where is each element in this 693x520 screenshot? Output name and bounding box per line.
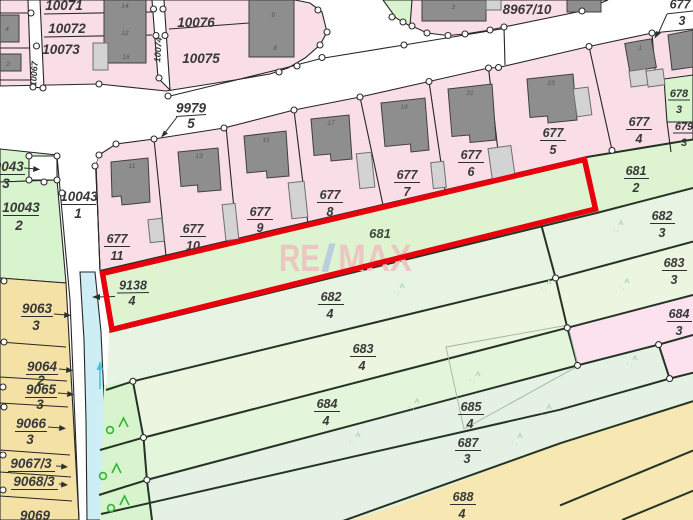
svg-text:5: 5 bbox=[550, 143, 558, 157]
svg-text:682: 682 bbox=[652, 209, 673, 223]
svg-text:681: 681 bbox=[626, 164, 647, 178]
svg-text:8: 8 bbox=[273, 45, 277, 52]
svg-text:4: 4 bbox=[5, 26, 9, 33]
svg-text:2: 2 bbox=[14, 218, 23, 233]
svg-text:9979: 9979 bbox=[176, 101, 207, 116]
svg-text:5: 5 bbox=[187, 116, 195, 131]
svg-text:3: 3 bbox=[679, 14, 686, 28]
svg-text:677: 677 bbox=[543, 126, 565, 140]
svg-text:RE: RE bbox=[279, 238, 320, 280]
svg-text:4: 4 bbox=[358, 359, 366, 373]
svg-text:11: 11 bbox=[129, 163, 136, 170]
svg-text:13: 13 bbox=[195, 153, 203, 160]
svg-text:4: 4 bbox=[466, 417, 474, 431]
svg-text:9068/3: 9068/3 bbox=[13, 474, 55, 489]
svg-text:3: 3 bbox=[32, 318, 40, 333]
svg-text:679: 679 bbox=[675, 121, 693, 133]
svg-text:15: 15 bbox=[262, 137, 270, 144]
svg-text:17: 17 bbox=[327, 120, 335, 127]
svg-text:14: 14 bbox=[121, 3, 129, 10]
svg-text:688: 688 bbox=[453, 490, 474, 504]
svg-text:6: 6 bbox=[468, 165, 476, 179]
svg-text:12: 12 bbox=[121, 30, 129, 37]
svg-text:677: 677 bbox=[320, 188, 342, 202]
svg-text:10043: 10043 bbox=[60, 189, 98, 204]
svg-text:3: 3 bbox=[451, 4, 455, 11]
svg-text:685: 685 bbox=[461, 400, 483, 414]
svg-text:677: 677 bbox=[629, 115, 651, 129]
svg-text:7: 7 bbox=[404, 185, 412, 199]
svg-text:10067: 10067 bbox=[28, 60, 40, 87]
svg-text:677: 677 bbox=[670, 0, 692, 12]
svg-text:3: 3 bbox=[659, 226, 666, 240]
svg-text:10074: 10074 bbox=[152, 37, 164, 63]
svg-text:687: 687 bbox=[458, 436, 480, 450]
svg-text:10043: 10043 bbox=[0, 159, 24, 174]
svg-text:9065: 9065 bbox=[26, 382, 57, 397]
svg-text:2: 2 bbox=[632, 181, 640, 195]
svg-text:10073: 10073 bbox=[42, 42, 80, 57]
svg-text:3: 3 bbox=[676, 104, 682, 116]
svg-text:4: 4 bbox=[326, 307, 334, 321]
svg-text:4: 4 bbox=[635, 132, 643, 146]
svg-text:9: 9 bbox=[271, 12, 275, 19]
svg-text:10076: 10076 bbox=[177, 15, 215, 30]
svg-text:4: 4 bbox=[128, 294, 136, 308]
svg-text:682: 682 bbox=[321, 290, 342, 304]
svg-text:9064: 9064 bbox=[27, 359, 58, 374]
svg-text:9138: 9138 bbox=[119, 279, 147, 293]
svg-text:1: 1 bbox=[638, 45, 642, 52]
svg-text:21: 21 bbox=[465, 90, 474, 97]
svg-text:9067/3: 9067/3 bbox=[10, 456, 52, 471]
svg-text:16: 16 bbox=[122, 54, 130, 61]
svg-text:8967/10: 8967/10 bbox=[503, 2, 552, 17]
svg-text:10071: 10071 bbox=[45, 0, 83, 13]
svg-text:9069: 9069 bbox=[20, 508, 51, 520]
svg-text:3: 3 bbox=[676, 324, 683, 338]
svg-text:3: 3 bbox=[26, 432, 34, 447]
svg-text:10043: 10043 bbox=[2, 200, 40, 215]
svg-text:9063: 9063 bbox=[22, 301, 53, 316]
svg-text:1: 1 bbox=[74, 206, 82, 221]
svg-text:678: 678 bbox=[670, 88, 689, 100]
svg-text:3: 3 bbox=[36, 397, 44, 412]
svg-text:4: 4 bbox=[458, 507, 466, 520]
svg-text:11: 11 bbox=[111, 249, 124, 263]
svg-text:4: 4 bbox=[322, 414, 330, 428]
svg-text:9066: 9066 bbox=[16, 416, 47, 431]
svg-text:10072: 10072 bbox=[48, 21, 86, 36]
svg-text:677: 677 bbox=[183, 222, 205, 236]
svg-text:23: 23 bbox=[546, 80, 555, 87]
svg-text:2: 2 bbox=[5, 61, 10, 68]
svg-text:19: 19 bbox=[400, 104, 408, 111]
svg-text:3: 3 bbox=[681, 137, 687, 149]
svg-text:10075: 10075 bbox=[182, 51, 220, 66]
svg-text:3: 3 bbox=[671, 273, 678, 287]
svg-text:683: 683 bbox=[664, 256, 685, 270]
svg-text:684: 684 bbox=[669, 307, 690, 321]
svg-text:677: 677 bbox=[107, 232, 129, 246]
svg-text:677: 677 bbox=[461, 148, 483, 162]
svg-text:3: 3 bbox=[2, 176, 10, 191]
svg-text:683: 683 bbox=[353, 342, 374, 356]
svg-text:3: 3 bbox=[464, 452, 471, 466]
svg-text:677: 677 bbox=[397, 168, 419, 182]
svg-text:677: 677 bbox=[250, 205, 272, 219]
svg-text:684: 684 bbox=[317, 397, 338, 411]
